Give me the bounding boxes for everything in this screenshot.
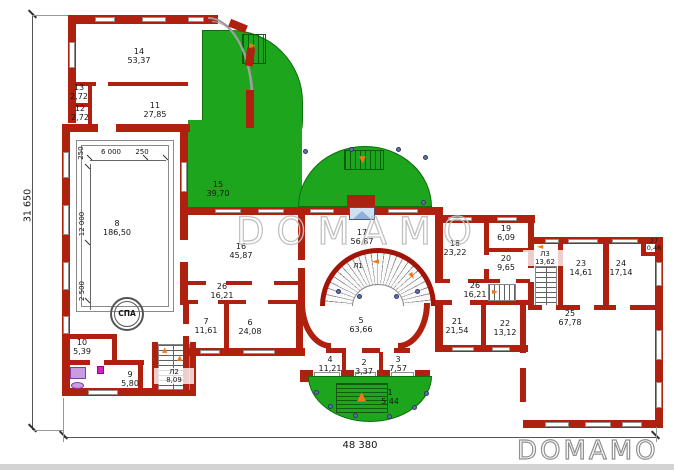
door-opening — [500, 279, 516, 283]
column-dot — [349, 147, 354, 152]
column-dot — [357, 294, 362, 299]
dimension-line — [90, 160, 166, 161]
room-label-20: 209,65 — [484, 254, 528, 272]
window — [612, 239, 638, 243]
column-dot — [314, 390, 319, 395]
window — [95, 17, 115, 22]
window — [656, 330, 662, 360]
dimension-line — [90, 164, 91, 310]
floor-plan: ► ▼ 250 6 000 250 12 000 2 500 — [0, 0, 674, 470]
window — [656, 382, 662, 408]
window — [69, 42, 75, 68]
extension-line — [33, 15, 68, 16]
stair-direction-arrow-icon: ▲ — [177, 355, 182, 362]
column-dot — [396, 147, 401, 152]
window — [188, 17, 204, 22]
room-label-1: 15,44 — [368, 388, 412, 406]
door-opening — [198, 300, 218, 304]
wall — [246, 90, 254, 128]
room-label-13: 132,72 — [57, 83, 101, 101]
column-dot — [328, 404, 333, 409]
stair-direction-arrow-icon: ▼ — [359, 156, 366, 165]
window — [200, 350, 220, 354]
door-opening — [98, 124, 116, 132]
room-label-8: 8186,50 — [95, 219, 139, 237]
pool-dim-250-right: 250 — [130, 148, 154, 156]
window — [568, 239, 598, 243]
window — [545, 239, 559, 243]
bathroom-fixture — [97, 366, 104, 374]
room-label-19: 196,09 — [484, 224, 528, 242]
window — [497, 217, 517, 221]
room-label-26a: 2616,21 — [200, 282, 244, 300]
column-dot — [423, 155, 428, 160]
room-label-15: 1539,70 — [196, 180, 240, 198]
watermark-corner: DOMAMO — [517, 436, 659, 466]
stair-label-l1: Л1 — [336, 262, 380, 270]
room-label-9: 95,80 — [108, 370, 152, 388]
column-dot — [394, 294, 399, 299]
stair-direction-arrow-icon: ▲ — [357, 390, 366, 402]
wall — [520, 368, 526, 402]
room-label-6: 624,08 — [228, 318, 272, 336]
wall — [394, 348, 410, 353]
room-label-22: 2213,12 — [483, 319, 527, 337]
window — [492, 347, 510, 351]
door-opening — [452, 300, 470, 305]
wall — [362, 348, 380, 353]
window — [452, 347, 474, 351]
door-opening — [616, 305, 630, 310]
column-dot — [412, 405, 417, 410]
door-opening — [180, 240, 188, 262]
window — [585, 422, 611, 427]
pool-dim-250-left: 250 — [77, 138, 85, 168]
stair-label-l3: Л313,62 — [523, 250, 567, 266]
window — [243, 350, 275, 354]
room-label-21: 2121,54 — [435, 317, 479, 335]
room-label-24: 2417,14 — [599, 259, 643, 277]
column-dot — [336, 289, 341, 294]
dimension-label-left: 31 650 — [23, 180, 34, 232]
pool-dim-12000: 12 000 — [78, 204, 86, 244]
pool-dim-6000: 6 000 — [96, 148, 126, 156]
extension-line — [63, 398, 64, 442]
wall — [180, 124, 188, 305]
room-label-12: 122,72 — [58, 104, 102, 122]
pool-dim-2500: 2 500 — [78, 271, 86, 311]
room-label-27: 270,46 — [639, 238, 669, 253]
room-label-26b: 2616,21 — [453, 281, 497, 299]
column-dot — [421, 200, 426, 205]
door-opening — [246, 300, 268, 304]
window — [181, 162, 187, 192]
column-dot — [303, 149, 308, 154]
wall — [296, 303, 303, 353]
room-label-14: 1453,37 — [117, 47, 161, 65]
room-label-7: 711,61 — [184, 317, 228, 335]
column-dot — [353, 413, 358, 418]
window — [88, 390, 118, 395]
wall — [298, 268, 305, 304]
column-dot — [387, 414, 392, 419]
window — [63, 262, 69, 290]
window — [656, 262, 662, 286]
room-label-11: 1127,85 — [133, 101, 177, 119]
dimension-label-bottom: 48 380 — [320, 440, 400, 451]
wall — [347, 195, 375, 207]
window — [142, 17, 166, 22]
stair-label-l2: Л28,09 — [154, 368, 194, 384]
wall — [435, 345, 528, 352]
stair-direction-arrow-icon: ▲ — [162, 347, 167, 354]
spa-label: СПА — [113, 309, 141, 318]
window — [63, 152, 69, 178]
watermark-center: DOMAMO — [236, 210, 484, 253]
page-edge-strip — [0, 464, 674, 470]
window — [622, 422, 642, 427]
stair-divider — [546, 266, 547, 308]
room-label-5: 563,66 — [339, 316, 383, 334]
curved-wall — [398, 303, 430, 349]
bathroom-fixture — [70, 367, 86, 379]
room-label-3: 37,57 — [376, 355, 420, 373]
window — [63, 205, 69, 235]
bathroom-fixture — [71, 382, 84, 389]
window — [63, 316, 69, 334]
door-opening — [252, 281, 274, 285]
room-label-25: 2567,78 — [548, 309, 592, 327]
column-dot — [415, 289, 420, 294]
column-dot — [424, 391, 429, 396]
door-opening — [90, 360, 104, 365]
window — [545, 422, 569, 427]
wall — [62, 124, 190, 132]
room-label-10: 105,39 — [60, 338, 104, 356]
curved-wall — [299, 303, 331, 349]
